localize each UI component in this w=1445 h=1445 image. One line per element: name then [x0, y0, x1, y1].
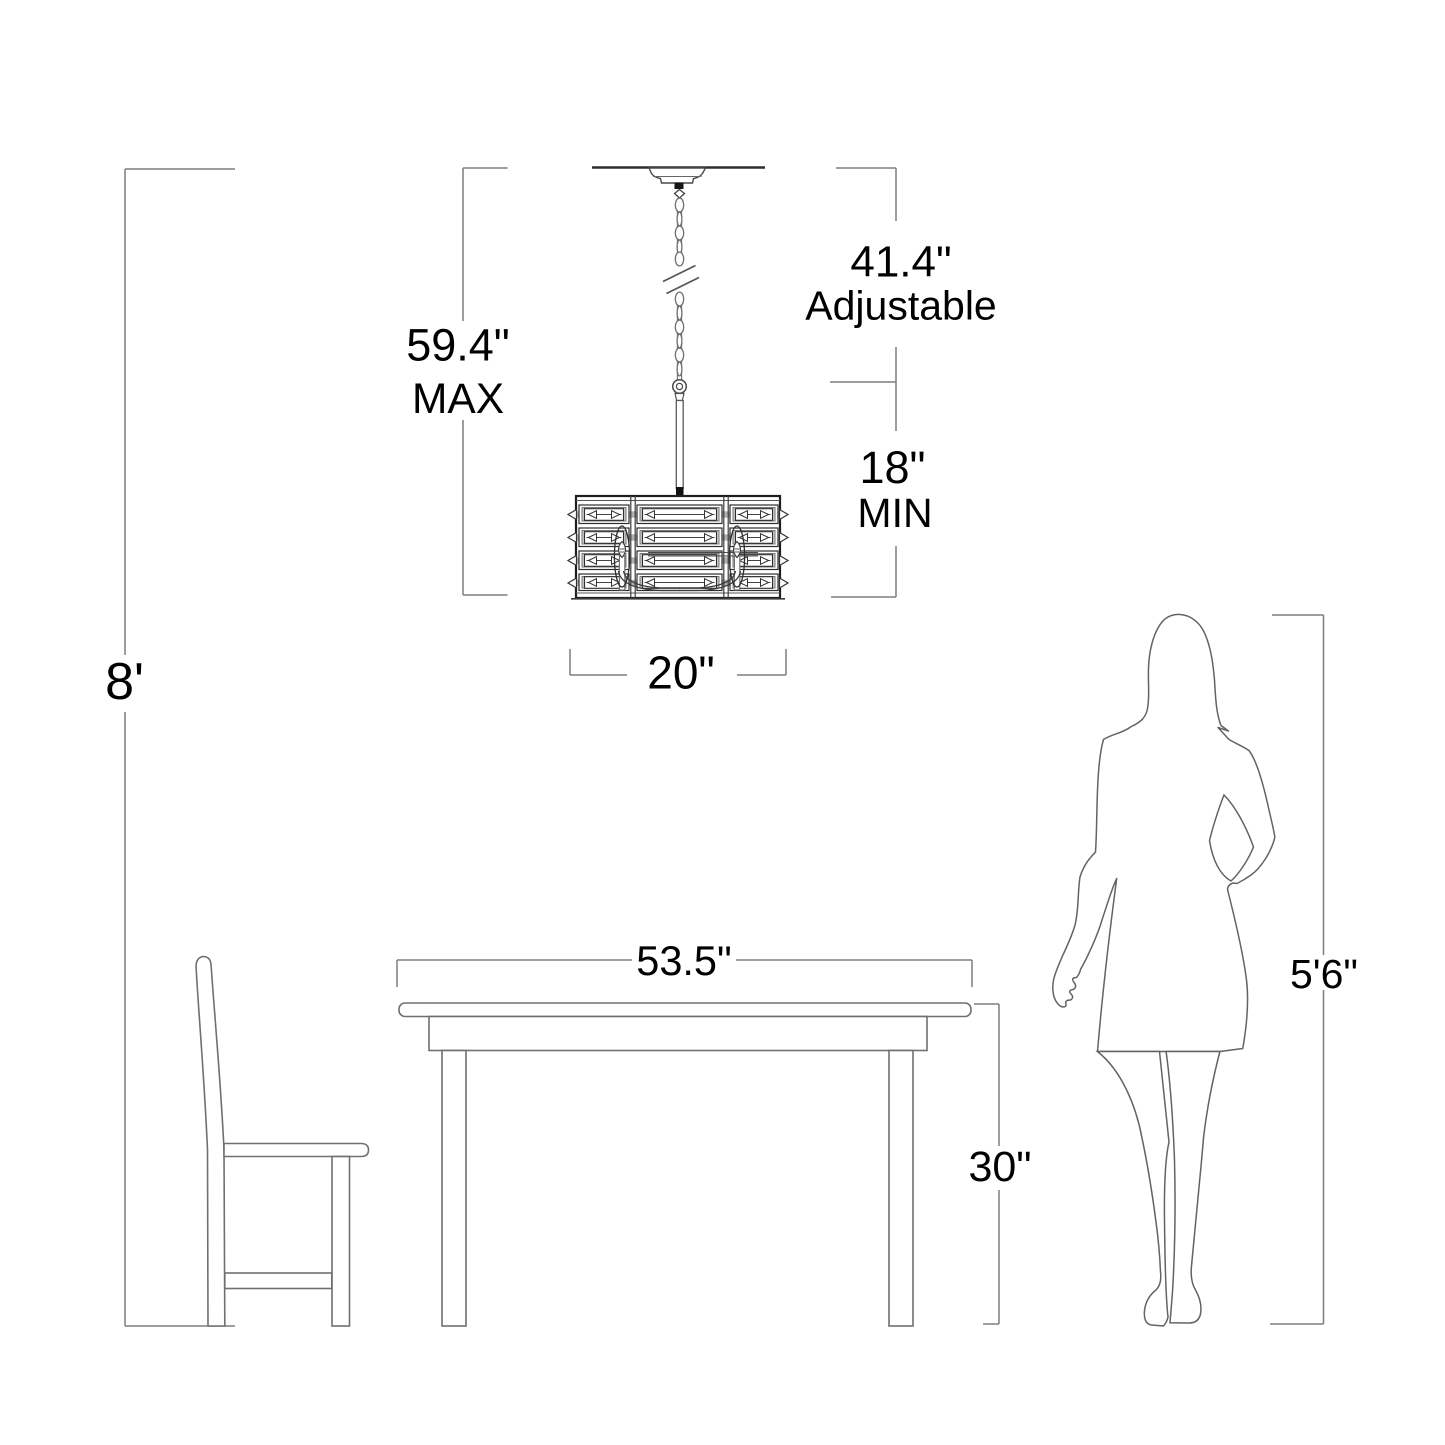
svg-text:5'6": 5'6"	[1290, 951, 1358, 997]
svg-text:Adjustable: Adjustable	[805, 283, 996, 329]
svg-text:41.4": 41.4"	[850, 238, 951, 287]
svg-text:20": 20"	[647, 647, 715, 699]
svg-text:53.5": 53.5"	[636, 937, 732, 984]
svg-text:MIN: MIN	[857, 490, 932, 536]
svg-text:8': 8'	[105, 653, 144, 711]
svg-text:59.4": 59.4"	[406, 320, 510, 371]
svg-text:18": 18"	[859, 442, 925, 493]
svg-text:30": 30"	[968, 1143, 1031, 1191]
svg-text:MAX: MAX	[412, 376, 504, 423]
